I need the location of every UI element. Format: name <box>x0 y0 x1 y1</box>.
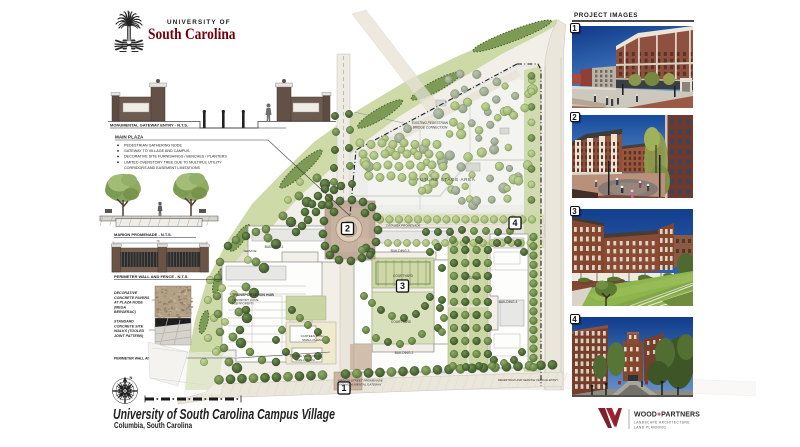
svg-text:MAIN PLAZA: MAIN PLAZA <box>115 135 144 140</box>
svg-text:PERIMETER WALL AND FENCE - N.T: PERIMETER WALL AND FENCE - N.T.S. <box>114 274 188 279</box>
svg-text:BRIDGE CONNECTION: BRIDGE CONNECTION <box>413 126 448 130</box>
svg-text:BUILDING 1: BUILDING 1 <box>265 245 284 249</box>
svg-text:2: 2 <box>345 224 350 234</box>
svg-text:CONCRETE PAVERS: CONCRETE PAVERS <box>114 296 150 300</box>
svg-text:SMALL PLAZA: SMALL PLAZA <box>302 338 322 342</box>
svg-text:AT PLAZA NODE: AT PLAZA NODE <box>113 301 143 305</box>
svg-text:HUB PROPERTY: HUB PROPERTY <box>232 302 254 306</box>
svg-text:GATEWAY TO VILLAGE AND CAMPUS: GATEWAY TO VILLAGE AND CAMPUS <box>124 149 190 153</box>
svg-text:CATAWBA PROMENADE: CATAWBA PROMENADE <box>386 224 421 228</box>
svg-text:DECORATIVE SITE FURNISHINGS /: DECORATIVE SITE FURNISHINGS / BENCHES / … <box>124 155 227 159</box>
svg-text:CONCRETE SITE: CONCRETE SITE <box>114 324 144 328</box>
svg-text:SMALL PLAZA: SMALL PLAZA <box>295 358 315 362</box>
svg-text:PEDESTRIAN GATHERING NODE: PEDESTRIAN GATHERING NODE <box>124 144 182 148</box>
svg-text:MARION PROMENADE - N.T.S.: MARION PROMENADE - N.T.S. <box>114 232 172 237</box>
svg-text:WOOD+PARTNERS: WOOD+PARTNERS <box>634 412 700 419</box>
svg-text:DECORATIVE: DECORATIVE <box>114 291 138 295</box>
svg-text:4: 4 <box>512 218 517 228</box>
svg-text:COURTYARD: COURTYARD <box>391 320 412 324</box>
svg-text:(MEGA: (MEGA <box>114 305 126 309</box>
svg-text:STANDARD: STANDARD <box>114 320 134 324</box>
svg-text:SERVICE: SERVICE <box>243 249 256 253</box>
svg-text:N: N <box>130 375 133 380</box>
svg-text:MONUMENTAL GATEWAY ENTRY - N.T: MONUMENTAL GATEWAY ENTRY - N.T.S. <box>110 123 188 128</box>
svg-text:BUILDING 3: BUILDING 3 <box>391 249 410 253</box>
svg-text:COURTYARD: COURTYARD <box>393 274 414 278</box>
svg-text:70: 70 <box>156 239 160 243</box>
svg-text:PEDESTRIAN AND SERVICE VEHICLE: PEDESTRIAN AND SERVICE VEHICLE ENTRY <box>498 378 559 382</box>
svg-text:JOINT PATTERN): JOINT PATTERN) <box>114 334 144 338</box>
svg-text:CORRIDORS AND EASEMENT LIMITAT: CORRIDORS AND EASEMENT LIMITATIONS <box>124 166 201 170</box>
svg-text:LANDSCAPE ARCHITECTURE: LANDSCAPE ARCHITECTURE <box>634 421 690 425</box>
svg-text:EXISTING PEDESTRIAN: EXISTING PEDESTRIAN <box>412 121 449 125</box>
svg-text:TRANSPORTATION HUB: TRANSPORTATION HUB <box>232 293 274 297</box>
svg-text:GREEN: GREEN <box>469 276 482 280</box>
svg-text:BUILDING 2: BUILDING 2 <box>395 351 414 355</box>
svg-text:WALKS (TOOLED: WALKS (TOOLED <box>114 329 144 333</box>
svg-text:AND MONUMENTAL GATEWAY: AND MONUMENTAL GATEWAY <box>337 383 383 387</box>
svg-text:3: 3 <box>400 281 405 291</box>
svg-text:LAND PLANNING: LAND PLANNING <box>634 426 666 430</box>
svg-text:BERGERAC): BERGERAC) <box>114 310 137 314</box>
svg-text:BUILDING 4: BUILDING 4 <box>499 300 518 304</box>
svg-text:FUTURE STAGE AREA: FUTURE STAGE AREA <box>417 177 476 182</box>
svg-text:LIMITED OVERSTORY TREE DUE TO: LIMITED OVERSTORY TREE DUE TO MULTIPLE U… <box>124 160 222 164</box>
